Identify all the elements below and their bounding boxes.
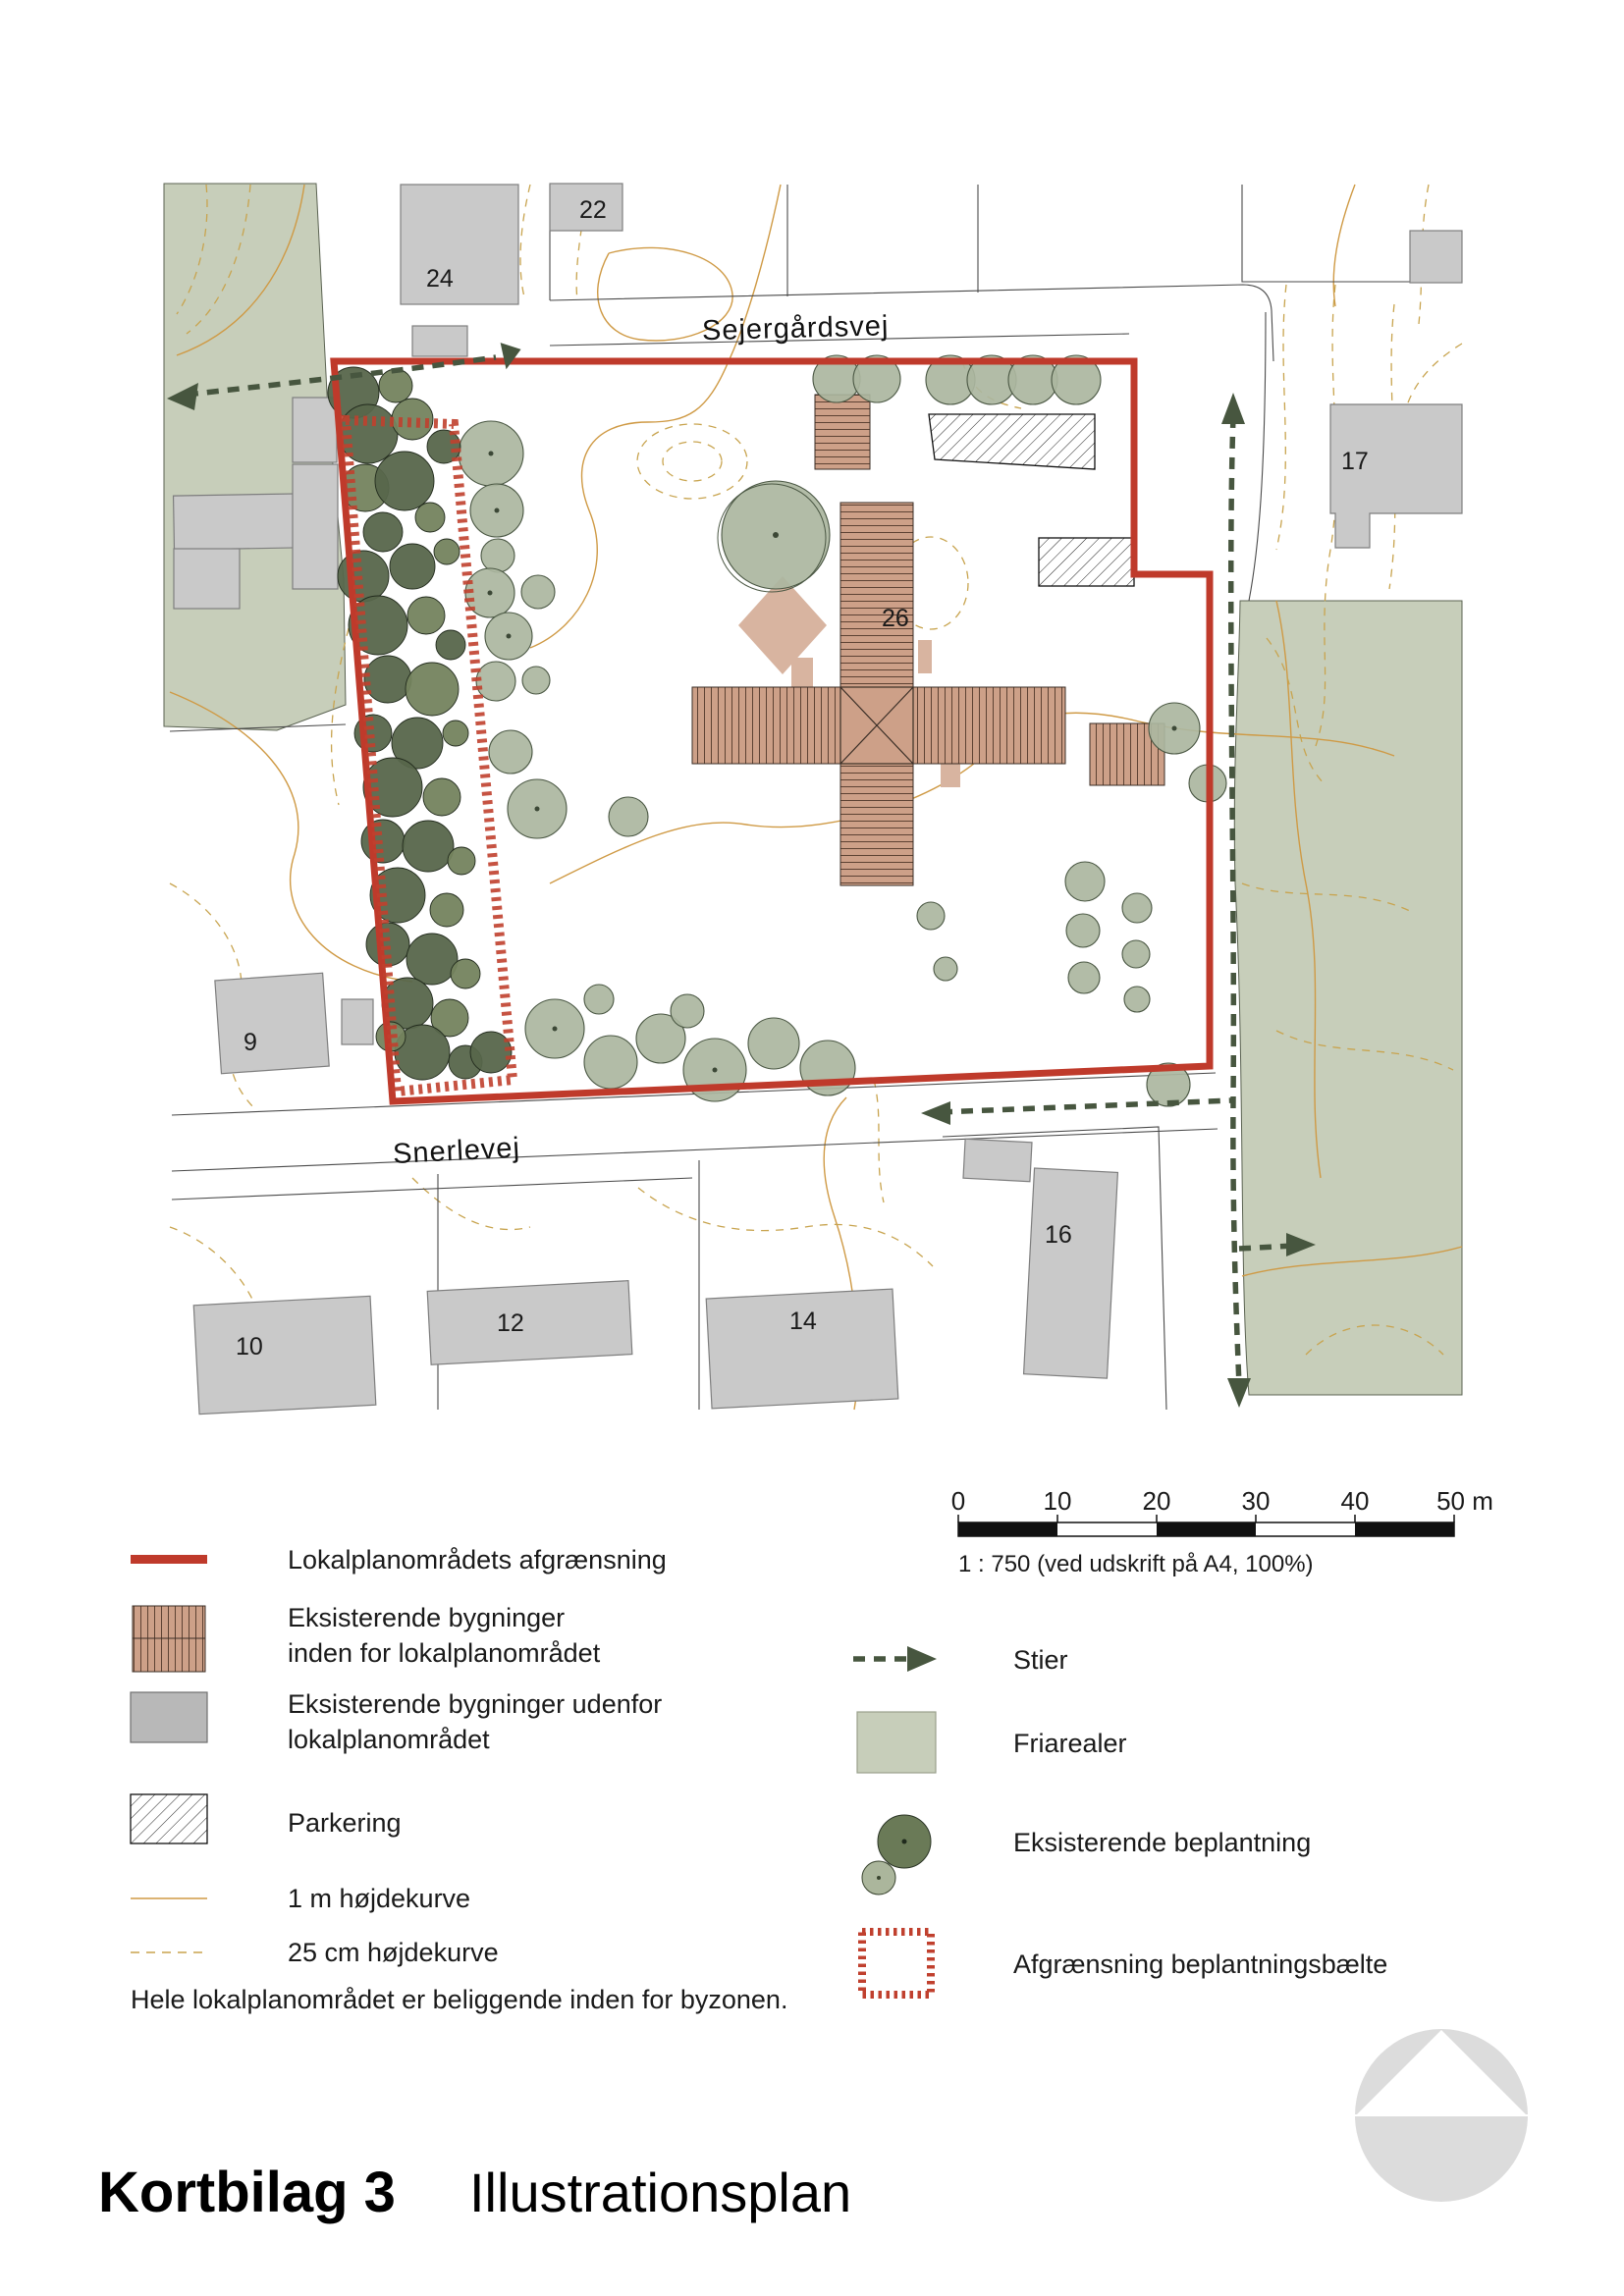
legend-label-boundary: Lokalplanområdets afgrænsning: [288, 1545, 667, 1575]
page-title: Kortbilag 3 Illustrationsplan: [98, 2161, 851, 2224]
legend-swatch-friarealer: [857, 1712, 936, 1773]
house-number-10: 10: [236, 1333, 263, 1361]
legend-label-friarealer: Friarealer: [1013, 1729, 1127, 1758]
page-title-regular: Illustrationsplan: [469, 2162, 851, 2223]
scale-tick-10: 10: [1044, 1486, 1072, 1516]
friareal-areas: [164, 184, 1462, 1395]
legend-label-stier: Stier: [1013, 1645, 1068, 1675]
municipality-logo: [1355, 2029, 1528, 2202]
friareal-east: [1234, 601, 1462, 1395]
building-north-small: [815, 395, 870, 469]
house-number-17: 17: [1341, 448, 1369, 475]
scale-tick-0: 0: [951, 1486, 965, 1516]
scale-tick-30: 30: [1242, 1486, 1271, 1516]
legend-swatch-boundary: [131, 1555, 207, 1564]
map-area: Sejergårdsvej Snerlevej 22 24 17 26 9 16…: [164, 184, 1462, 1415]
legend-swatch-stier: [853, 1646, 937, 1672]
scale-tick-50m: 50 m: [1436, 1486, 1493, 1516]
parking-east: [1039, 538, 1134, 586]
legend-label-beplantningsbaelte: Afgrænsning beplantningsbælte: [1013, 1949, 1387, 1979]
scale-tick-20: 20: [1143, 1486, 1171, 1516]
legend-swatch-beplantningsbaelte: [862, 1932, 931, 1995]
house-number-14: 14: [789, 1308, 817, 1335]
house-number-9: 9: [244, 1029, 257, 1056]
page-title-bold: Kortbilag 3: [98, 2161, 396, 2224]
legend-label-beplantning: Eksisterende beplantning: [1013, 1828, 1311, 1857]
illustration-plan-page: Sejergårdsvej Snerlevej 22 24 17 26 9 16…: [0, 0, 1624, 2296]
legend-label-contour-1m: 1 m højdekurve: [288, 1884, 470, 1913]
house-number-12: 12: [497, 1309, 524, 1337]
legend-label-building-outside-1: Eksisterende bygninger udenfor: [288, 1689, 662, 1719]
legend-swatch-parking: [131, 1794, 207, 1843]
legend-swatch-building-outside: [131, 1692, 207, 1742]
legend-label-parking: Parkering: [288, 1808, 402, 1838]
scale-tick-40: 40: [1341, 1486, 1370, 1516]
scale-caption: 1 : 750 (ved udskrift på A4, 100%): [958, 1551, 1314, 1577]
salmon-annex-small-2: [941, 764, 960, 787]
street-label-sejergardsvej: Sejergårdsvej: [702, 310, 890, 347]
parking-areas: [929, 414, 1134, 586]
legend-note: Hele lokalplanområdet er beliggende inde…: [131, 1985, 787, 2014]
legend-right: Stier Friarealer Eksisterende beplantnin…: [853, 1645, 1387, 1995]
legend-label-building-outside-2: lokalplanområdet: [288, 1725, 490, 1754]
house-number-16: 16: [1045, 1221, 1072, 1249]
house-number-22: 22: [579, 196, 607, 224]
salmon-annex-small-1: [918, 640, 932, 673]
legend-label-building-inside-1: Eksisterende bygninger: [288, 1603, 565, 1632]
street-label-snerlevej: Snerlevej: [392, 1132, 520, 1170]
legend-label-contour-25cm: 25 cm højdekurve: [288, 1938, 499, 1967]
house-number-24: 24: [426, 265, 454, 293]
house-number-26: 26: [882, 605, 909, 632]
legend-swatch-building-inside: [133, 1606, 205, 1672]
legend-left: Lokalplanområdets afgrænsning Eksisteren…: [131, 1545, 787, 2014]
parking-north: [929, 414, 1095, 469]
legend-swatch-beplantning: [862, 1815, 931, 1895]
building-main-roof-hip: [840, 687, 913, 764]
scale-bar: 0 10 20 30 40 50 m 1 : 750 (ved udskrift…: [951, 1486, 1493, 1577]
legend-label-building-inside-2: inden for lokalplanområdet: [288, 1638, 601, 1668]
